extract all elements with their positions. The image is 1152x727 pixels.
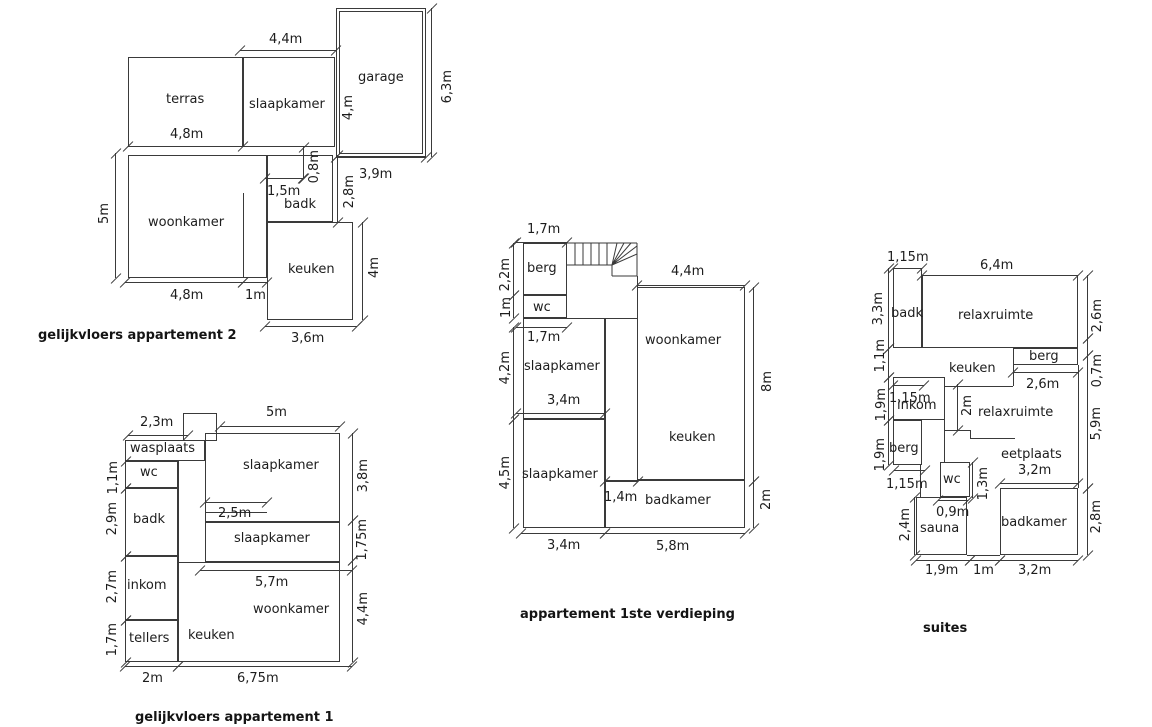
room-label-wc: wc	[943, 472, 961, 487]
dim-line	[362, 222, 363, 320]
room-label-wc: wc	[140, 465, 158, 480]
room-label-slaapkamer-2: slaapkamer	[234, 531, 310, 546]
dim-label: 1,7m	[527, 330, 560, 345]
dim-line	[753, 481, 754, 528]
room-label-slaapkamer-1: slaapkamer	[524, 359, 600, 374]
room-label-relaxruimte-1: relaxruimte	[958, 308, 1033, 323]
room-label-keuken: keuken	[949, 361, 996, 376]
dim-line	[125, 620, 126, 662]
dim-label: 2,9m	[105, 502, 120, 535]
dim-line	[888, 348, 889, 377]
dim-label: 3,4m	[547, 538, 580, 553]
dim-tick	[426, 3, 437, 14]
wall-line	[605, 318, 606, 480]
dim-label: 1,15m	[886, 477, 928, 492]
room-label-relaxruimte-2: relaxruimte	[978, 405, 1053, 420]
dim-label: 4,8m	[170, 127, 203, 142]
dim-label: 5m	[97, 203, 112, 224]
dim-line	[888, 420, 889, 465]
wall-line	[178, 461, 179, 562]
dim-line	[888, 268, 889, 348]
dim-label: 4,8m	[170, 288, 203, 303]
room-label-woonkamer: woonkamer	[645, 333, 721, 348]
dim-label: 3,8m	[356, 459, 371, 492]
room-label-eetplaats: eetplaats	[1001, 447, 1062, 462]
room-label-woonkamer: woonkamer	[148, 215, 224, 230]
dim-label: 2m	[960, 395, 975, 416]
dim-tick	[952, 379, 963, 390]
room-label-badk: badk	[284, 197, 316, 212]
dim-line	[1000, 483, 1078, 484]
dim-label: 1,9m	[874, 388, 889, 421]
dim-label: 1,7m	[105, 623, 120, 656]
dim-label: 4,5m	[498, 456, 513, 489]
dim-label: 2,8m	[342, 175, 357, 208]
dim-label: 6,75m	[237, 671, 279, 686]
dim-line	[914, 497, 915, 555]
room-label-berg-2: berg	[889, 441, 919, 456]
room-label-badkamer: badkamer	[645, 493, 711, 508]
dim-line	[972, 462, 973, 498]
dim-line	[220, 426, 340, 427]
dim-line	[605, 533, 745, 534]
dim-label: 0,8m	[307, 150, 322, 183]
dim-tick	[120, 277, 131, 288]
dim-tick	[235, 45, 246, 56]
wall-line	[567, 318, 637, 319]
room-label-badk: badk	[133, 512, 165, 527]
dim-label: 2,5m	[218, 506, 251, 521]
dim-line	[605, 481, 638, 482]
room-label-sauna: sauna	[920, 521, 959, 536]
dim-tick	[352, 321, 363, 332]
dim-line	[516, 327, 567, 328]
dim-label: 6,4m	[980, 258, 1013, 273]
dim-tick	[110, 148, 121, 159]
dim-line	[352, 560, 353, 662]
dim-line	[352, 520, 353, 560]
dim-line	[513, 419, 514, 528]
dim-line	[893, 385, 924, 386]
stairs-icon	[566, 242, 640, 278]
dim-label: 1,1m	[873, 339, 888, 372]
room-label-badk: badk	[891, 306, 923, 321]
dim-line	[352, 433, 353, 520]
dim-line	[513, 327, 514, 419]
dim-tick	[508, 523, 519, 534]
dim-label: 5m	[266, 405, 287, 420]
room-label-slaapkamer-2: slaapkamer	[522, 467, 598, 482]
dim-label: 2,4m	[898, 508, 913, 541]
dim-label: 1,3m	[976, 467, 991, 500]
dim-line	[938, 500, 968, 501]
dim-label: 4,4m	[269, 32, 302, 47]
dim-label: 1,4m	[604, 490, 637, 505]
dim-label: 2,6m	[1026, 377, 1059, 392]
dim-label: 0,9m	[936, 505, 969, 520]
dim-tick	[335, 421, 346, 432]
dim-label: 2,6m	[1090, 299, 1105, 332]
dim-label: 3,2m	[1018, 463, 1051, 478]
dim-label: 5,9m	[1089, 407, 1104, 440]
dim-tick	[889, 465, 900, 476]
dim-tick	[920, 465, 931, 476]
dim-label: 1,1m	[106, 461, 121, 494]
dim-label: 1,15m	[889, 391, 931, 406]
caption-gelijkvloers-appartement-2: gelijkvloers appartement 2	[38, 328, 237, 343]
dim-tick	[260, 321, 271, 332]
dim-label: 4,2m	[498, 351, 513, 384]
room-label-berg-1: berg	[1029, 349, 1059, 364]
dim-tick	[508, 238, 519, 249]
dim-label: 4,4m	[356, 592, 371, 625]
dim-label: 1,7m	[527, 222, 560, 237]
dim-tick	[110, 273, 121, 284]
dim-line	[125, 461, 126, 488]
room-label-badkamer: badkamer	[1001, 515, 1067, 530]
dim-line	[970, 560, 1000, 561]
dim-label: 2m	[142, 671, 163, 686]
dim-line	[1000, 560, 1078, 561]
dim-line	[922, 275, 1078, 276]
room-label-wasplaats: wasplaats	[130, 441, 195, 456]
dim-tick	[1082, 270, 1093, 281]
room-label-keuken: keuken	[288, 262, 335, 277]
room-label-wc: wc	[533, 300, 551, 315]
dim-line	[516, 413, 605, 414]
dim-line	[957, 384, 958, 430]
dim-line	[265, 326, 357, 327]
dim-line	[125, 488, 126, 556]
dim-line	[1087, 338, 1088, 355]
room-label-terras: terras	[166, 92, 204, 107]
dim-tick	[123, 430, 134, 441]
dim-label: 0,7m	[1090, 354, 1105, 387]
dim-line	[431, 8, 432, 157]
room-label-inkom: inkom	[127, 578, 167, 593]
dim-label: 3,2m	[1018, 563, 1051, 578]
dim-line	[128, 146, 243, 147]
dim-tick	[1073, 270, 1084, 281]
dim-line	[1013, 372, 1078, 373]
dim-label: 5,7m	[255, 575, 288, 590]
dim-label: 6,3m	[440, 70, 455, 103]
room-label-tellers: tellers	[129, 631, 169, 646]
dim-line	[336, 157, 426, 158]
dim-line	[115, 153, 116, 278]
dim-line	[205, 502, 267, 503]
dim-tick	[995, 478, 1006, 489]
dim-line	[125, 282, 243, 283]
dim-tick	[347, 428, 358, 439]
dim-line	[240, 50, 336, 51]
dim-label: 2m	[759, 489, 774, 510]
room-label-keuken: keuken	[669, 430, 716, 445]
room-woonkamer-keuken	[637, 287, 745, 480]
dim-line	[125, 666, 178, 667]
dim-tick	[357, 217, 368, 228]
dim-line	[516, 242, 567, 243]
dim-line	[265, 178, 303, 179]
dim-label: 3,6m	[291, 331, 324, 346]
dim-label: 2,3m	[140, 415, 173, 430]
wall-line	[967, 555, 1000, 556]
dim-label: 1,9m	[925, 563, 958, 578]
room-label-garage: garage	[358, 70, 404, 85]
dim-line	[513, 243, 514, 295]
dim-line	[894, 470, 925, 471]
dim-label: 4m	[367, 257, 382, 278]
dim-line	[893, 268, 922, 269]
dim-label: 4,m	[341, 95, 356, 120]
dim-tick	[1082, 550, 1093, 561]
dim-line	[303, 147, 304, 178]
dim-line	[125, 556, 126, 620]
dim-line	[753, 287, 754, 481]
room-label-berg: berg	[527, 261, 557, 276]
room-label-woonkamer: woonkamer	[253, 602, 329, 617]
dim-label: 2,7m	[105, 570, 120, 603]
room-label-slaapkamer-1: slaapkamer	[243, 458, 319, 473]
dim-label: 4,4m	[671, 264, 704, 279]
dim-line	[1087, 488, 1088, 555]
dim-label: 1m	[973, 563, 994, 578]
caption-suites: suites	[923, 621, 967, 636]
wall-line	[1013, 365, 1014, 386]
room-label-keuken: keuken	[188, 628, 235, 643]
wall-line	[970, 438, 1015, 439]
floor-plans-canvas: terras slaapkamer garage woonkamer badk …	[0, 0, 1152, 727]
caption-appartement-1ste-verdieping: appartement 1ste verdieping	[520, 607, 735, 622]
dim-tick	[516, 528, 527, 539]
wall-line	[944, 420, 945, 462]
room-label-slaapkamer: slaapkamer	[249, 97, 325, 112]
dim-label: 3,3m	[871, 292, 886, 325]
dim-line	[243, 282, 267, 283]
dim-line	[521, 533, 605, 534]
dim-label: 1m	[499, 297, 514, 318]
dim-tick	[740, 280, 751, 291]
dim-line	[916, 560, 970, 561]
dim-label: 3,4m	[547, 393, 580, 408]
dim-line	[178, 666, 352, 667]
dim-line	[128, 435, 188, 436]
dim-line	[637, 285, 745, 286]
dim-label: 3,9m	[359, 167, 392, 182]
dim-line	[1087, 275, 1088, 338]
dim-label: 8m	[760, 371, 775, 392]
dim-label: 2,2m	[498, 258, 513, 291]
dim-label: 1,9m	[873, 438, 888, 471]
dim-label: 2,8m	[1089, 500, 1104, 533]
dim-line	[200, 570, 352, 571]
dim-line	[337, 155, 338, 222]
wall-line	[243, 193, 244, 277]
dim-label: 1m	[245, 288, 266, 303]
wall-line	[970, 430, 971, 438]
wall-line	[1078, 365, 1079, 488]
dim-line	[1087, 355, 1088, 488]
dim-label: 1,5m	[267, 184, 300, 199]
caption-gelijkvloers-appartement-1: gelijkvloers appartement 1	[135, 710, 334, 725]
dim-label: 5,8m	[656, 539, 689, 554]
dim-tick	[748, 282, 759, 293]
